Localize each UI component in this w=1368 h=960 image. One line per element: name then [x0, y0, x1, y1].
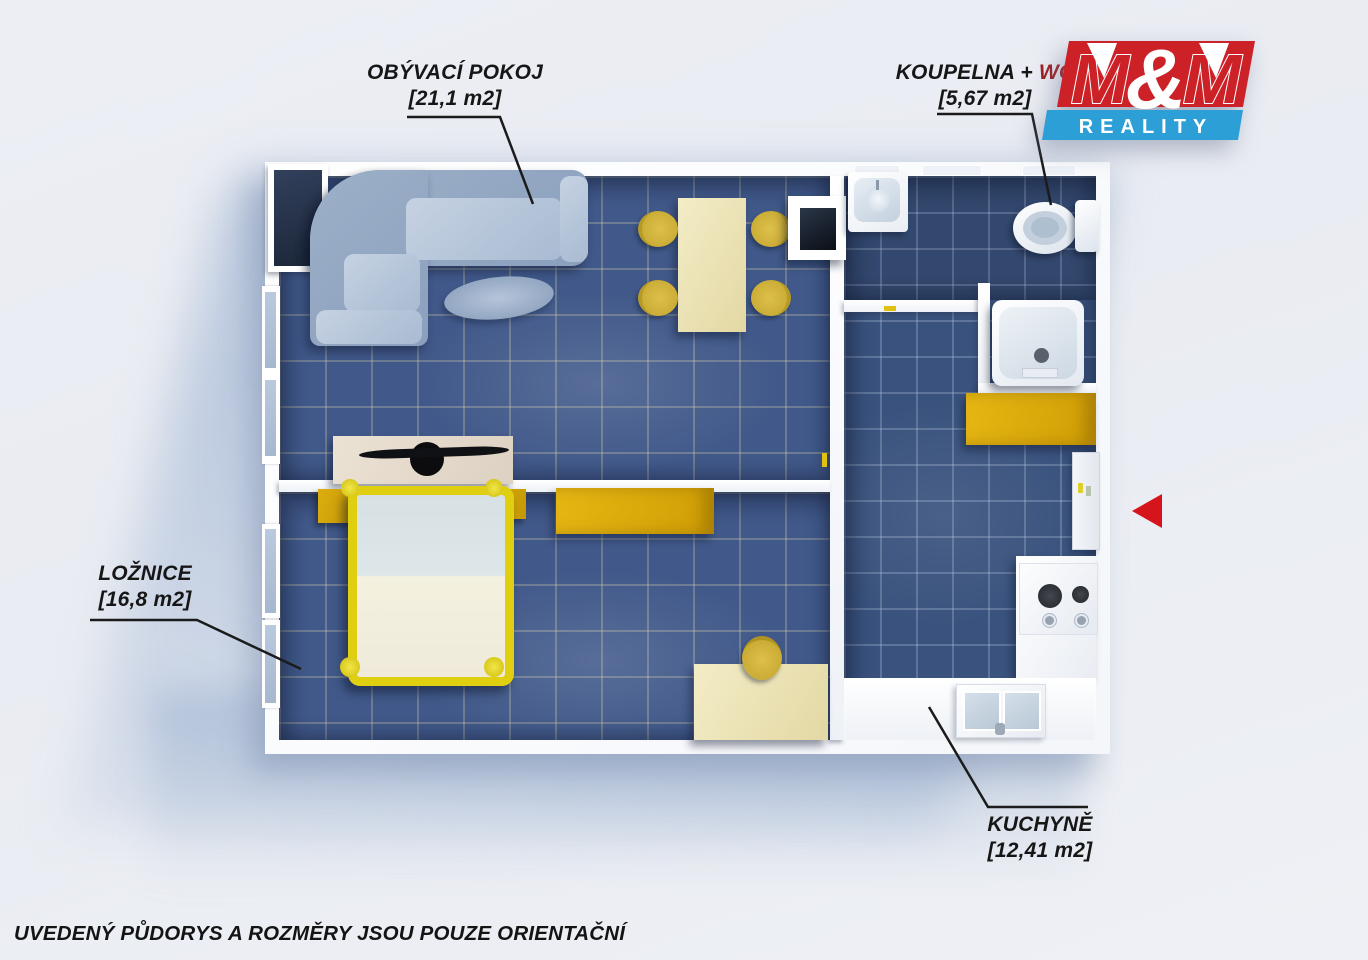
toilet-water — [1031, 217, 1059, 238]
bed — [348, 486, 514, 686]
dining-table — [678, 198, 746, 332]
disclaimer-text: UVEDENÝ PŮDORYS A ROZMĚRY JSOU POUZE ORI… — [14, 921, 625, 947]
sink-basin-right — [1003, 691, 1041, 731]
window-glass — [265, 529, 276, 613]
tv-stand — [333, 436, 513, 484]
washing-machine — [848, 172, 908, 232]
stove-knob — [1077, 616, 1086, 625]
door-handle-living — [822, 453, 827, 467]
vent-shaft-opening — [800, 208, 836, 250]
toilet-tank — [1075, 200, 1099, 252]
entrance-arrow-icon — [1132, 494, 1162, 528]
toilet — [1013, 200, 1103, 256]
label-bedroom-area: [16,8 m2] — [50, 587, 240, 613]
vent-shaft — [788, 196, 846, 260]
window-glass — [265, 292, 276, 368]
bed-knob — [485, 479, 503, 497]
shower-drain — [1034, 348, 1049, 363]
sink-faucet — [995, 723, 1005, 735]
bed-knob — [484, 657, 504, 677]
bathroom-window-2 — [922, 165, 982, 176]
sofa-armrest-right — [560, 176, 588, 262]
bathroom-window-3 — [1022, 165, 1076, 176]
sink-unit — [956, 684, 1046, 738]
sofa-seat-top — [406, 198, 562, 260]
stove-burner-small — [1072, 586, 1089, 603]
label-bathroom-text: KOUPELNA + — [896, 61, 1033, 84]
label-bedroom: LOŽNICE [16,8 m2] — [50, 561, 240, 613]
wardrobe — [556, 488, 714, 534]
bathroom-wall — [844, 300, 988, 312]
door-hook — [1078, 483, 1083, 493]
label-living-room-area: [21,1 m2] — [330, 86, 580, 112]
label-living-room: OBÝVACÍ POKOJ [21,1 m2] — [330, 60, 580, 112]
floorplan-render: OBÝVACÍ POKOJ [21,1 m2] KOUPELNA + WC [5… — [0, 0, 1368, 960]
label-kitchen-name: KUCHYNĚ — [945, 812, 1135, 838]
label-kitchen-area: [12,41 m2] — [945, 838, 1135, 864]
shower-tray — [992, 300, 1084, 386]
stove-burner-large — [1038, 584, 1062, 608]
door-handle-bathroom — [884, 306, 896, 311]
sofa-seat-left — [344, 254, 420, 312]
label-bedroom-name: LOŽNICE — [50, 561, 240, 587]
dining-chair — [751, 211, 791, 247]
sofa-armrest-bottom — [316, 310, 422, 344]
entry-door — [1072, 452, 1100, 550]
mm-reality-logo: M M & REALITY — [1030, 34, 1265, 149]
window-glass — [265, 380, 276, 456]
shower-partition-wall — [978, 283, 990, 393]
label-living-room-name: OBÝVACÍ POKOJ — [330, 60, 580, 86]
door-hook — [1086, 486, 1091, 496]
hall-cabinet — [966, 393, 1096, 445]
floorplan — [265, 162, 1110, 754]
dining-chair — [751, 280, 791, 316]
window-glass — [265, 625, 276, 703]
logo-ampersand: & — [1126, 34, 1187, 126]
mm-reality-logo-svg: M M & REALITY — [1030, 34, 1265, 149]
shower-faucet — [1022, 368, 1058, 378]
bed-knob — [340, 657, 360, 677]
logo-reality-text: REALITY — [1079, 116, 1214, 138]
corner-sofa — [310, 170, 590, 348]
window-living — [262, 286, 280, 464]
dining-chair — [638, 280, 678, 316]
stove — [1019, 563, 1098, 635]
interior-wall-vertical — [830, 176, 844, 740]
dining-chair — [638, 211, 678, 247]
bed-knob — [341, 479, 359, 497]
window-bedroom-1 — [262, 524, 280, 618]
label-kitchen: KUCHYNĚ [12,41 m2] — [945, 812, 1135, 864]
washing-machine-valve — [876, 180, 879, 190]
stove-knob — [1045, 616, 1054, 625]
window-bedroom-2 — [262, 620, 280, 708]
desk-chair — [742, 636, 782, 680]
